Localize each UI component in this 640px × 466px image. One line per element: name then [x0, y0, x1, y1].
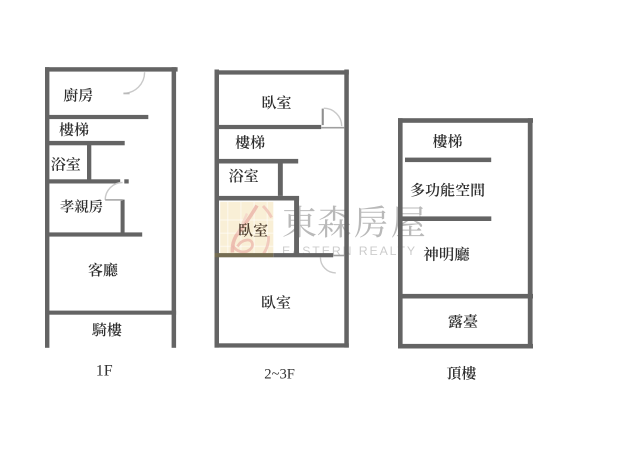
svg-text:2~3F: 2~3F — [264, 367, 295, 383]
svg-text:1F: 1F — [96, 362, 113, 379]
